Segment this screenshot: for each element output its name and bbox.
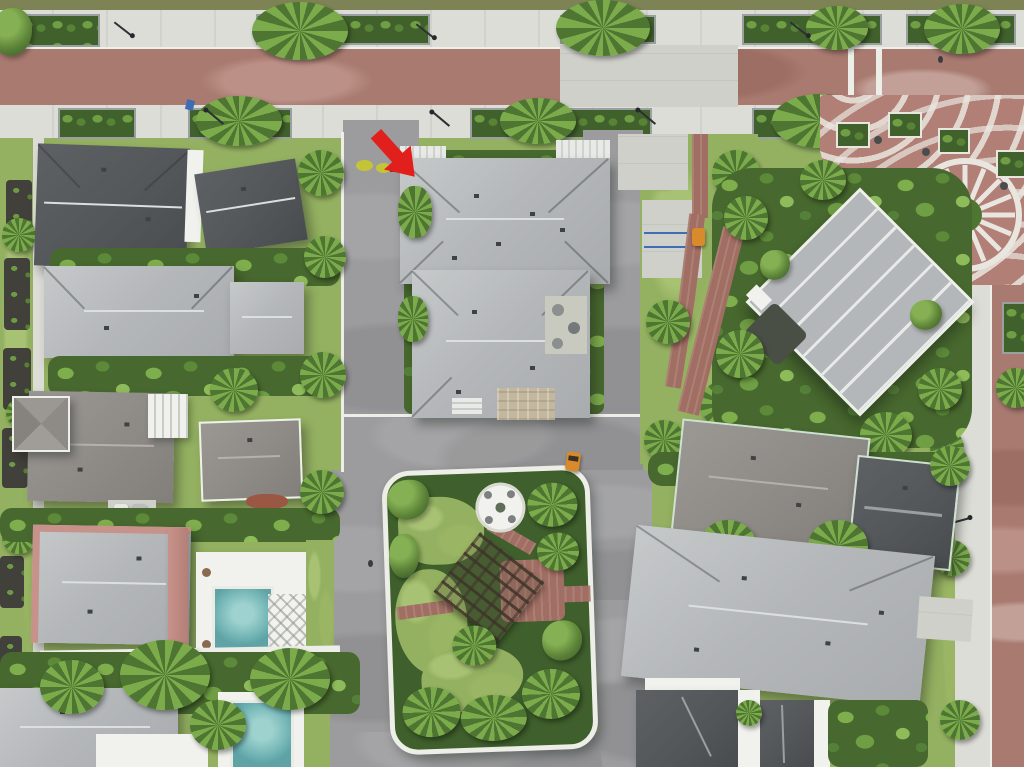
garden-palm bbox=[2, 218, 36, 252]
hedge-row bbox=[48, 356, 338, 396]
island-tree bbox=[402, 686, 462, 738]
plaza-planter bbox=[938, 128, 970, 154]
patio-furniture bbox=[568, 322, 580, 334]
target-home-north-wing-roof bbox=[400, 158, 610, 284]
island-shrub bbox=[541, 620, 582, 661]
island-tree bbox=[536, 532, 579, 571]
home-w-1-roof bbox=[44, 266, 234, 358]
plaza-cafe-table bbox=[922, 148, 930, 156]
garden-bed bbox=[4, 258, 30, 330]
palm-canopy bbox=[190, 700, 246, 750]
community-garden-palm bbox=[800, 160, 846, 200]
plaza-planter bbox=[888, 112, 922, 138]
home-w-4-pink-wing bbox=[168, 528, 188, 646]
east-lawn-palm bbox=[646, 300, 690, 344]
target-home-garage-door bbox=[452, 398, 482, 414]
home-s-roof bbox=[636, 690, 738, 767]
plaza-planter bbox=[996, 150, 1024, 178]
street-tree bbox=[924, 4, 1000, 54]
palm-cluster bbox=[210, 368, 258, 412]
palm-cluster bbox=[300, 470, 344, 514]
corner-palm bbox=[398, 296, 428, 342]
cul-de-sac-island bbox=[381, 464, 599, 755]
target-home-flat-roof bbox=[556, 140, 610, 160]
home-w-1-wing-roof bbox=[230, 282, 304, 354]
island-tree bbox=[460, 694, 528, 742]
street-tree bbox=[196, 96, 282, 146]
island-tree bbox=[527, 482, 579, 528]
home-w-2-lanai bbox=[148, 394, 188, 438]
community-garden-palm bbox=[724, 196, 768, 240]
palm-canopy bbox=[40, 660, 104, 714]
island-tree bbox=[521, 668, 581, 720]
plaza-cafe-table bbox=[1000, 182, 1008, 190]
community-garden-palm bbox=[716, 330, 764, 378]
palm-cluster bbox=[304, 236, 346, 278]
palm-cluster bbox=[300, 352, 346, 398]
home-s-courtyard-palm bbox=[736, 700, 762, 726]
pedestrian bbox=[938, 56, 943, 63]
garden-urn bbox=[202, 568, 211, 577]
palm-canopy bbox=[250, 648, 330, 710]
street-tree bbox=[556, 0, 650, 56]
grass-verge-top bbox=[0, 0, 1024, 10]
patio-furniture bbox=[552, 304, 564, 316]
plaza-planter bbox=[836, 122, 870, 148]
home-e-2-driveway bbox=[917, 596, 974, 642]
utility-cart bbox=[692, 228, 705, 246]
home-w-2-turret-roof bbox=[12, 396, 70, 452]
home-s-roof-2 bbox=[758, 700, 814, 767]
north-drive bbox=[618, 134, 688, 190]
target-home-lanai-pavers bbox=[545, 296, 587, 354]
golf-cart bbox=[565, 451, 582, 472]
red-mulch-bed bbox=[246, 494, 288, 509]
palm-cluster bbox=[298, 150, 344, 196]
street-tree bbox=[252, 2, 348, 60]
garden-brick-path bbox=[692, 134, 708, 218]
street-tree bbox=[500, 98, 576, 144]
home-w-3-roof bbox=[199, 418, 304, 502]
pool-pavilion-lattice-roof bbox=[268, 594, 306, 650]
right-street-planter bbox=[1002, 302, 1024, 354]
island-path-entry bbox=[556, 585, 591, 602]
garden-bed bbox=[0, 556, 24, 608]
side-lawn bbox=[306, 540, 334, 660]
home-nw-2-roof bbox=[194, 159, 308, 256]
home-sw-wall bbox=[96, 734, 208, 767]
right-street-brick-roadway bbox=[990, 285, 1024, 767]
hedge-row bbox=[828, 700, 928, 767]
home-w-4-roof bbox=[31, 525, 191, 646]
community-garden-palm bbox=[918, 368, 962, 410]
aerial-photo bbox=[0, 0, 1024, 767]
right-street-tree bbox=[940, 700, 980, 740]
palm-canopy bbox=[120, 640, 210, 710]
east-home-palm bbox=[930, 446, 970, 486]
swimming-pool bbox=[212, 586, 274, 654]
plaza-cafe-table bbox=[874, 136, 882, 144]
target-home-driveway-pavers bbox=[497, 388, 555, 420]
red-arrow-marker bbox=[368, 124, 424, 188]
patio-furniture bbox=[552, 338, 563, 349]
pedestrian bbox=[368, 560, 373, 567]
corner-palm bbox=[398, 186, 432, 238]
island-patio-circle bbox=[475, 482, 527, 534]
street-tree bbox=[806, 6, 868, 50]
street-planter bbox=[58, 108, 136, 139]
